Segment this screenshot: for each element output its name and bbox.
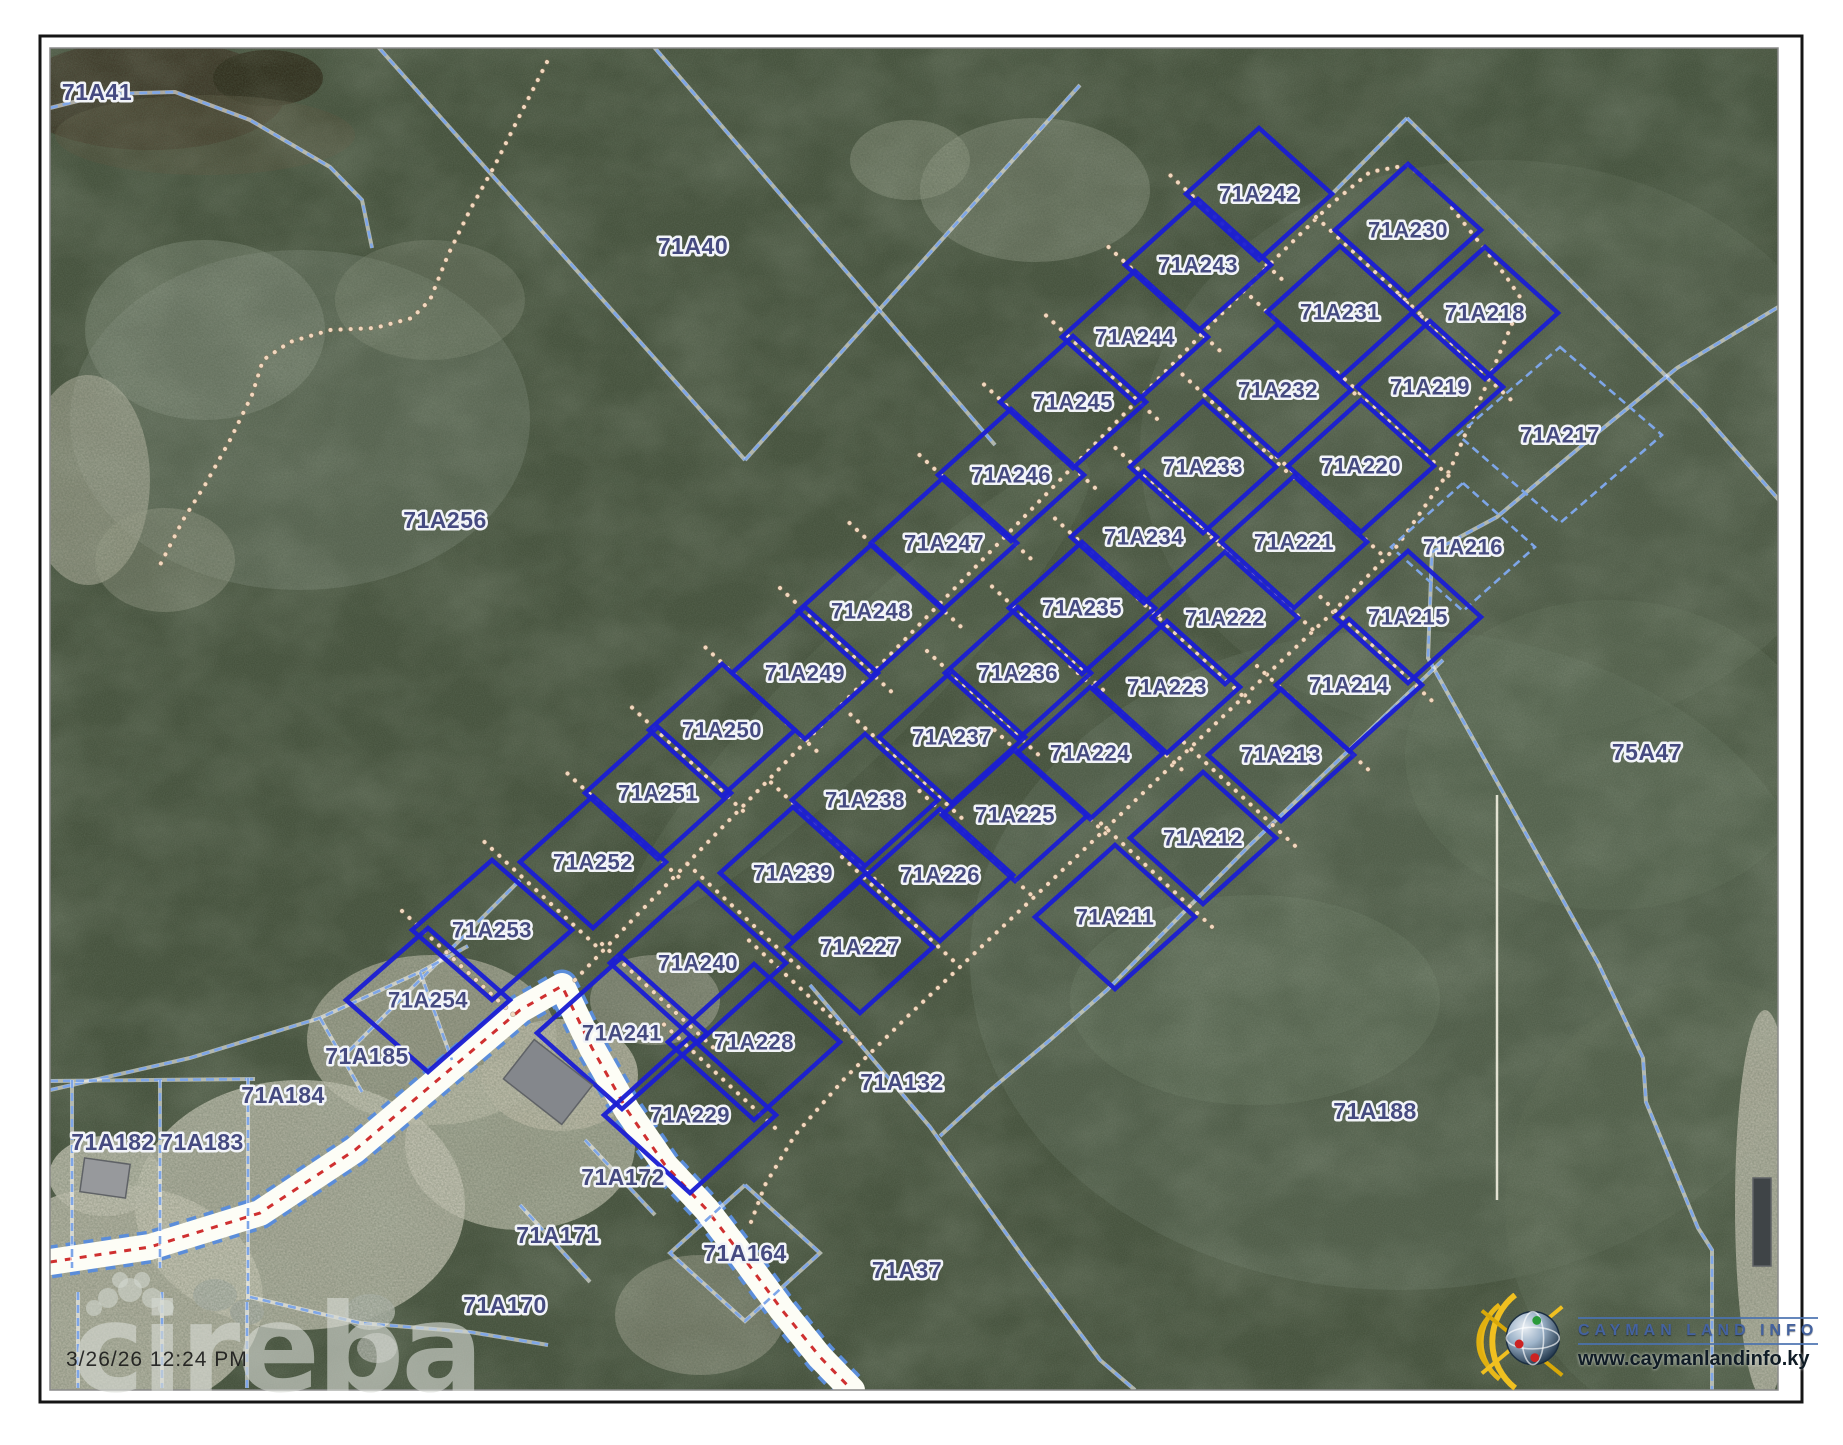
parcel-label: 71A229 [650,1103,730,1128]
building [1753,1178,1771,1266]
parcel-label: 71A184 [241,1082,325,1108]
parcel-label: 71A188 [1333,1098,1417,1124]
parcel-label: 71A222 [1185,606,1265,631]
parcel-label: 71A242 [1219,182,1299,207]
parcel-label: 71A185 [325,1043,409,1069]
parcel-label: 75A47 [1612,739,1682,765]
parcel-label: 71A214 [1309,673,1389,698]
parcel-label: 71A164 [703,1240,787,1266]
parcel-label: 71A132 [860,1069,944,1095]
parcel-label: 71A213 [1241,743,1321,768]
parcel-label: 71A37 [872,1257,942,1283]
parcel-label: 71A253 [452,918,532,943]
parcel-label: 71A170 [463,1292,547,1318]
parcel-label: 71A249 [765,661,845,686]
parcel-label: 71A246 [971,463,1051,488]
parcel-label: 71A221 [1254,530,1334,555]
parcel-label: 71A235 [1042,596,1122,621]
parcel-label: 71A172 [581,1164,665,1190]
parcel-label: 71A182 [71,1129,155,1155]
parcel-label: 71A212 [1163,826,1243,851]
map-document: 71A24271A24371A24471A24571A24671A24771A2… [0,0,1843,1445]
parcel-label: 71A238 [825,788,905,813]
parcel-label: 71A215 [1368,605,1448,630]
parcel-label: 71A231 [1300,300,1380,325]
parcel-label: 71A226 [900,863,980,888]
parcel-label: 71A237 [912,725,992,750]
parcel-label: 71A233 [1163,455,1243,480]
parcel-label: 71A243 [1158,253,1238,278]
parcel-label: 71A239 [753,861,833,886]
parcel-label: 71A236 [978,661,1058,686]
parcel-label: 71A230 [1368,218,1448,243]
parcel-label: 71A225 [975,803,1055,828]
map-canvas: 71A24271A24371A24471A24571A24671A24771A2… [0,0,1843,1445]
parcel-label: 71A250 [682,718,762,743]
parcel-label: 71A171 [516,1222,600,1248]
parcel-label: 71A228 [714,1030,794,1055]
parcel-label: 71A218 [1445,301,1525,326]
parcel-label: 71A245 [1033,390,1113,415]
parcel-label: 71A40 [658,233,728,259]
parcel-label: 71A234 [1104,525,1184,550]
parcel-label: 71A183 [160,1129,244,1155]
parcel-label: 71A240 [658,951,738,976]
parcel-label: 71A254 [388,988,468,1013]
parcel-label: 71A224 [1050,741,1130,766]
parcel-label: 71A252 [553,850,633,875]
parcel-label: 71A216 [1423,535,1503,560]
parcel-label: 71A247 [904,531,984,556]
parcel-label: 71A227 [820,935,900,960]
parcel-label: 71A211 [1076,905,1155,930]
parcel-label: 71A256 [403,507,487,533]
parcel-label: 71A241 [582,1021,662,1046]
parcel-label: 71A232 [1238,378,1318,403]
parcel-label: 71A220 [1321,454,1401,479]
parcel-label: 71A41 [62,79,132,105]
parcel-label: 71A217 [1520,423,1600,448]
parcel-label: 71A248 [831,599,911,624]
parcel-label: 71A219 [1390,375,1470,400]
parcel-label: 71A244 [1095,325,1175,350]
building [80,1158,130,1198]
parcel-label: 71A251 [618,781,698,806]
parcel-label: 71A223 [1127,675,1207,700]
